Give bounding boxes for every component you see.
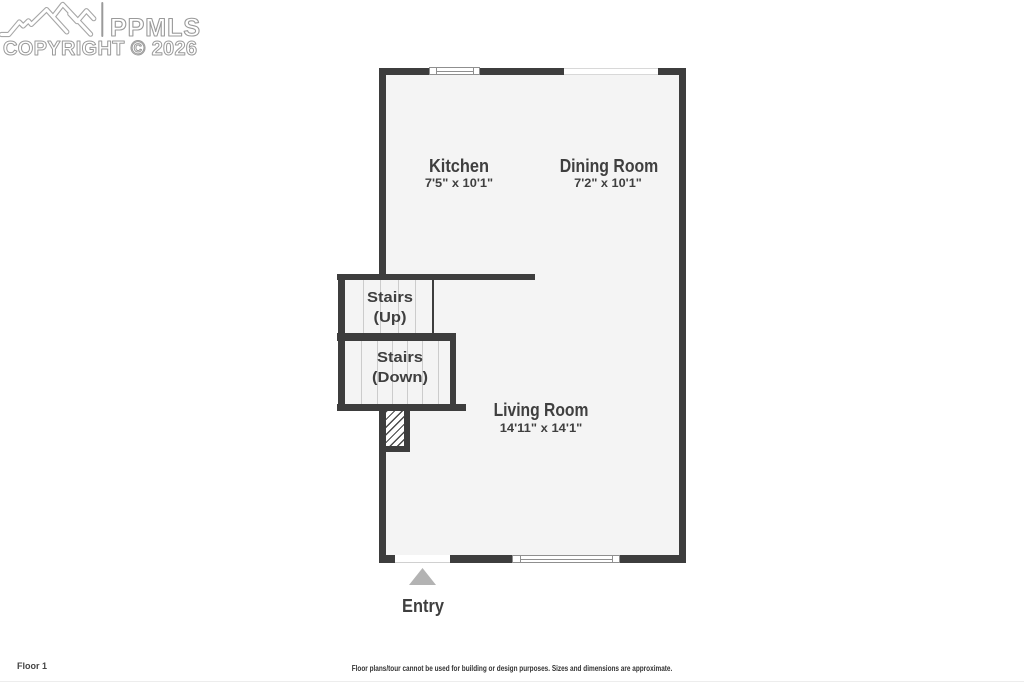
- svg-text:COPYRIGHT © 2026: COPYRIGHT © 2026: [3, 38, 197, 60]
